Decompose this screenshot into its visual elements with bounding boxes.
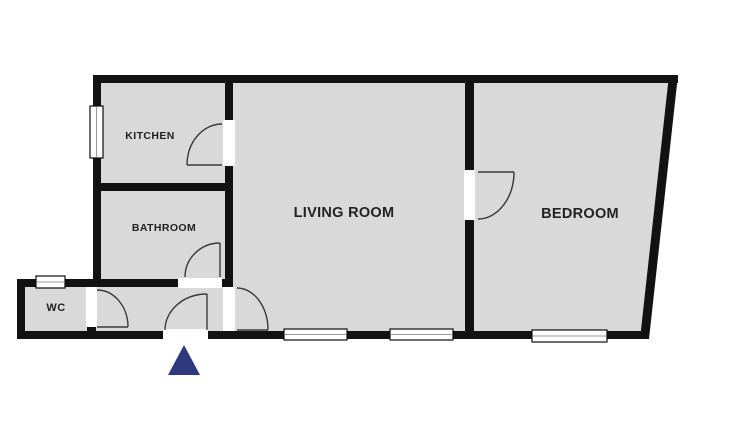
bathroom-label: BATHROOM xyxy=(132,222,196,234)
bedroom-door-opening xyxy=(464,170,475,220)
kitchen-label: KITCHEN xyxy=(125,130,174,142)
floorplan-canvas: KITCHEN BATHROOM WC LIVING ROOM BEDROOM xyxy=(0,0,736,441)
floorplan-svg: KITCHEN BATHROOM WC LIVING ROOM BEDROOM xyxy=(0,0,736,441)
bedroom-label: BEDROOM xyxy=(541,206,619,222)
bedroom-window xyxy=(532,330,607,342)
wc-window xyxy=(36,276,65,288)
hallway-living-room-door-opening xyxy=(223,287,235,331)
kitchen-door-opening xyxy=(223,120,235,166)
wc-label: WC xyxy=(46,302,65,314)
top-wall xyxy=(93,75,678,83)
entrance-marker-triangle xyxy=(168,345,200,375)
wc-left-wall xyxy=(17,279,25,339)
bathroom-door-opening xyxy=(178,278,222,288)
living-room-window-1 xyxy=(284,329,347,340)
wc-door-opening xyxy=(86,287,97,327)
kitchen-window xyxy=(90,106,103,158)
kitchen-bathroom-divider-wall xyxy=(93,183,233,191)
entrance-door-opening xyxy=(163,329,208,341)
living-room-label: LIVING ROOM xyxy=(294,205,395,221)
living-room-window-2 xyxy=(390,329,453,340)
kitchen-bathroom-floor xyxy=(97,79,230,283)
